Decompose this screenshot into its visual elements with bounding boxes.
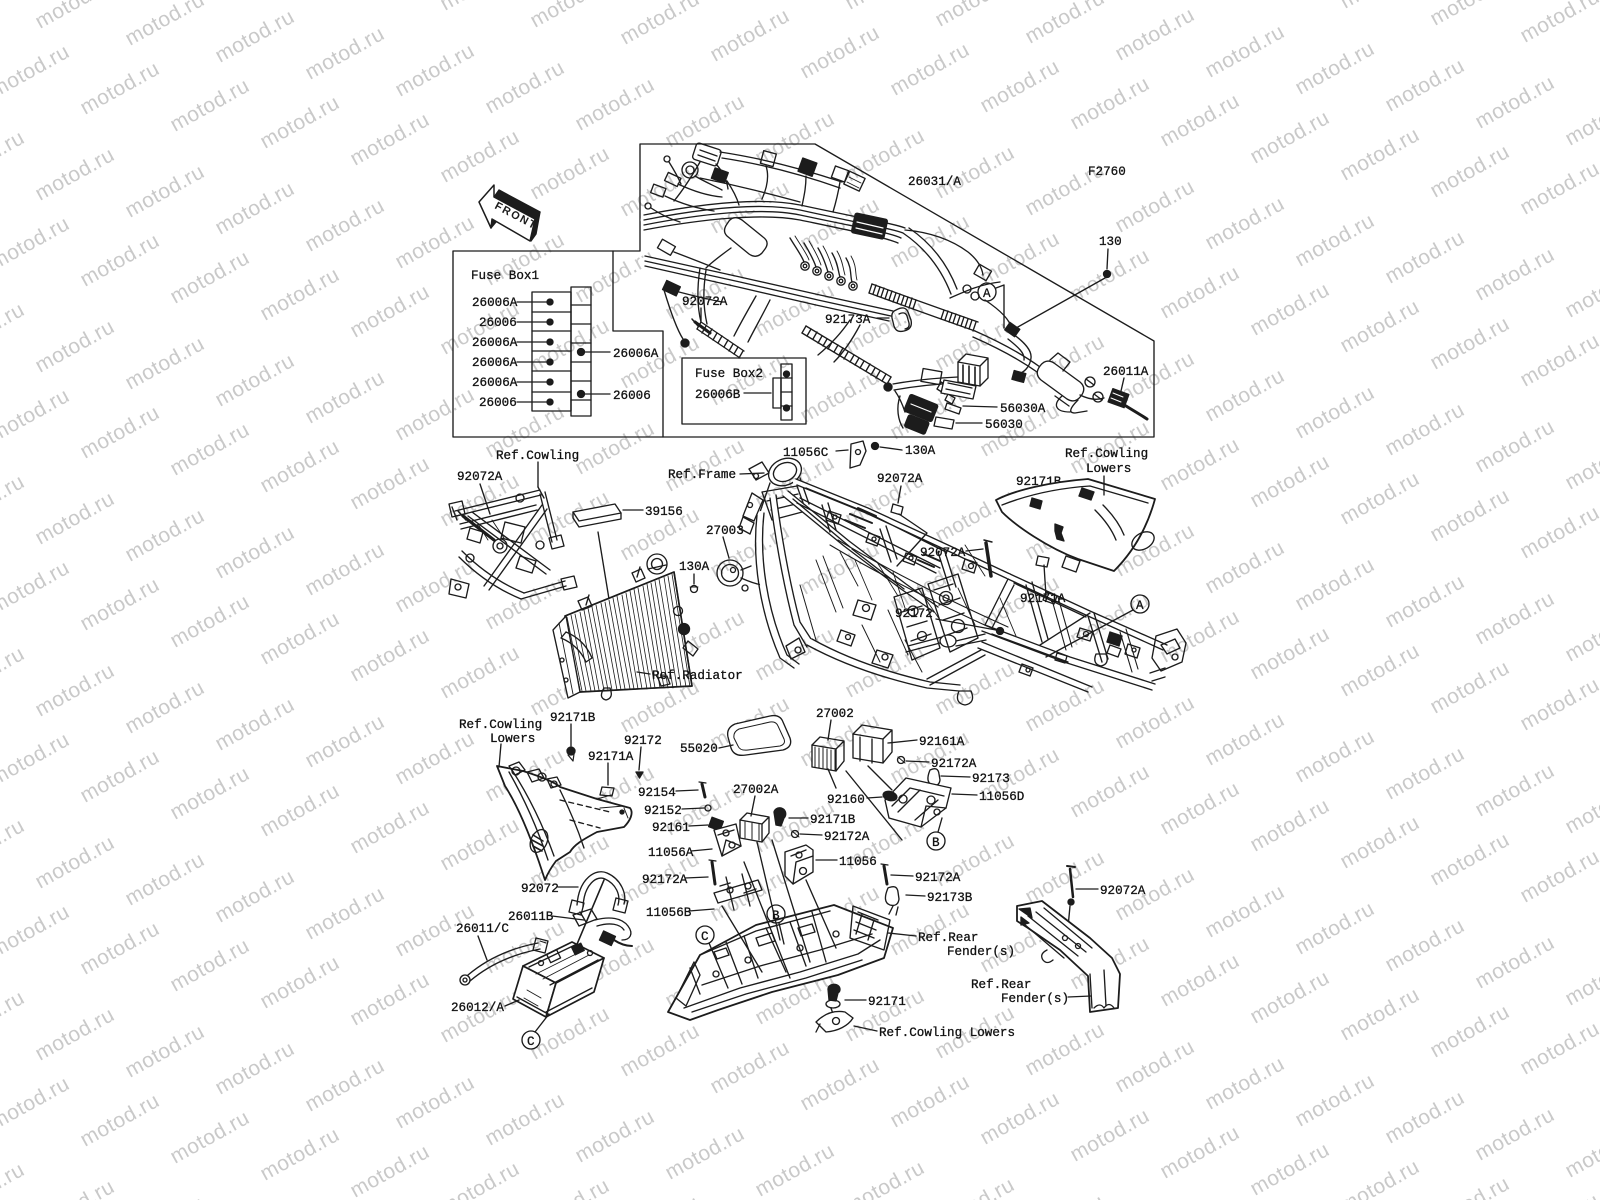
svg-text:56030A: 56030A bbox=[1000, 402, 1046, 416]
svg-text:92173A: 92173A bbox=[825, 313, 871, 327]
svg-text:26006A: 26006A bbox=[613, 347, 659, 361]
svg-text:92072A: 92072A bbox=[920, 546, 966, 560]
svg-text:92171A: 92171A bbox=[588, 750, 634, 764]
svg-text:92173B: 92173B bbox=[927, 891, 973, 905]
svg-text:Fender(s): Fender(s) bbox=[947, 945, 1015, 959]
svg-text:92072A: 92072A bbox=[682, 295, 728, 309]
svg-text:Ref.Radiator: Ref.Radiator bbox=[652, 669, 743, 683]
svg-text:92072A: 92072A bbox=[877, 472, 923, 486]
svg-text:92173: 92173 bbox=[972, 772, 1010, 786]
svg-text:92172: 92172 bbox=[895, 607, 933, 621]
svg-text:26006: 26006 bbox=[613, 389, 651, 403]
svg-text:11056B: 11056B bbox=[646, 906, 692, 920]
svg-text:Fuse Box1: Fuse Box1 bbox=[471, 269, 539, 283]
svg-text:92172A: 92172A bbox=[642, 873, 688, 887]
svg-text:A: A bbox=[983, 287, 991, 301]
svg-text:92171B: 92171B bbox=[550, 711, 596, 725]
svg-text:Lowers: Lowers bbox=[490, 732, 535, 746]
svg-text:92171: 92171 bbox=[868, 995, 906, 1009]
svg-text:130: 130 bbox=[1099, 235, 1122, 249]
svg-text:92172: 92172 bbox=[624, 734, 662, 748]
svg-text:C: C bbox=[527, 1035, 535, 1049]
svg-text:92172A: 92172A bbox=[824, 830, 870, 844]
svg-text:55020: 55020 bbox=[680, 742, 718, 756]
svg-text:11056C: 11056C bbox=[783, 446, 829, 460]
svg-text:26011A: 26011A bbox=[1103, 365, 1149, 379]
svg-text:Ref.Cowling: Ref.Cowling bbox=[459, 718, 542, 732]
svg-text:92072A: 92072A bbox=[457, 470, 503, 484]
svg-text:C: C bbox=[701, 930, 709, 944]
svg-text:Fender(s): Fender(s) bbox=[1001, 992, 1069, 1006]
svg-text:26006B: 26006B bbox=[695, 388, 741, 402]
svg-text:Ref.Frame: Ref.Frame bbox=[668, 468, 736, 482]
svg-text:92172A: 92172A bbox=[931, 757, 977, 771]
svg-text:27003: 27003 bbox=[706, 524, 744, 538]
svg-text:B: B bbox=[932, 836, 940, 850]
svg-text:11056D: 11056D bbox=[979, 790, 1024, 804]
svg-text:Ref.Cowling Lowers: Ref.Cowling Lowers bbox=[879, 1026, 1015, 1040]
svg-text:26012/A: 26012/A bbox=[451, 1001, 504, 1015]
svg-text:92154: 92154 bbox=[638, 786, 676, 800]
svg-text:92171A: 92171A bbox=[1020, 592, 1066, 606]
svg-text:Ref.Rear: Ref.Rear bbox=[971, 978, 1031, 992]
svg-text:26011/C: 26011/C bbox=[456, 922, 509, 936]
svg-text:130A: 130A bbox=[679, 560, 710, 574]
svg-text:26006: 26006 bbox=[479, 316, 517, 330]
svg-text:26006: 26006 bbox=[479, 396, 517, 410]
svg-text:A: A bbox=[1136, 599, 1144, 613]
svg-text:26006A: 26006A bbox=[472, 336, 518, 350]
svg-text:92160: 92160 bbox=[827, 793, 865, 807]
svg-text:B: B bbox=[772, 909, 780, 923]
svg-text:92172A: 92172A bbox=[915, 871, 961, 885]
svg-text:92161: 92161 bbox=[652, 821, 690, 835]
svg-text:26031/A: 26031/A bbox=[908, 175, 961, 189]
svg-text:Ref.Rear: Ref.Rear bbox=[918, 931, 978, 945]
svg-text:Ref.Cowling: Ref.Cowling bbox=[1065, 447, 1148, 461]
svg-text:Lowers: Lowers bbox=[1086, 462, 1131, 476]
svg-text:Fuse Box2: Fuse Box2 bbox=[695, 367, 763, 381]
svg-text:92072A: 92072A bbox=[1100, 884, 1146, 898]
svg-text:92152: 92152 bbox=[644, 804, 682, 818]
svg-text:27002: 27002 bbox=[816, 707, 854, 721]
svg-text:39156: 39156 bbox=[645, 505, 683, 519]
svg-text:26006A: 26006A bbox=[472, 296, 518, 310]
svg-text:92171B: 92171B bbox=[810, 813, 856, 827]
svg-text:130A: 130A bbox=[905, 444, 936, 458]
svg-text:Ref.Cowling: Ref.Cowling bbox=[496, 449, 579, 463]
svg-text:11056A: 11056A bbox=[648, 846, 694, 860]
svg-text:92072: 92072 bbox=[521, 882, 559, 896]
svg-text:26006A: 26006A bbox=[472, 376, 518, 390]
svg-text:F2760: F2760 bbox=[1088, 165, 1126, 179]
svg-text:92161A: 92161A bbox=[919, 735, 965, 749]
svg-text:26006A: 26006A bbox=[472, 356, 518, 370]
svg-text:11056: 11056 bbox=[839, 855, 877, 869]
svg-text:27002A: 27002A bbox=[733, 783, 779, 797]
svg-text:56030: 56030 bbox=[985, 418, 1023, 432]
svg-text:26011B: 26011B bbox=[508, 910, 554, 924]
